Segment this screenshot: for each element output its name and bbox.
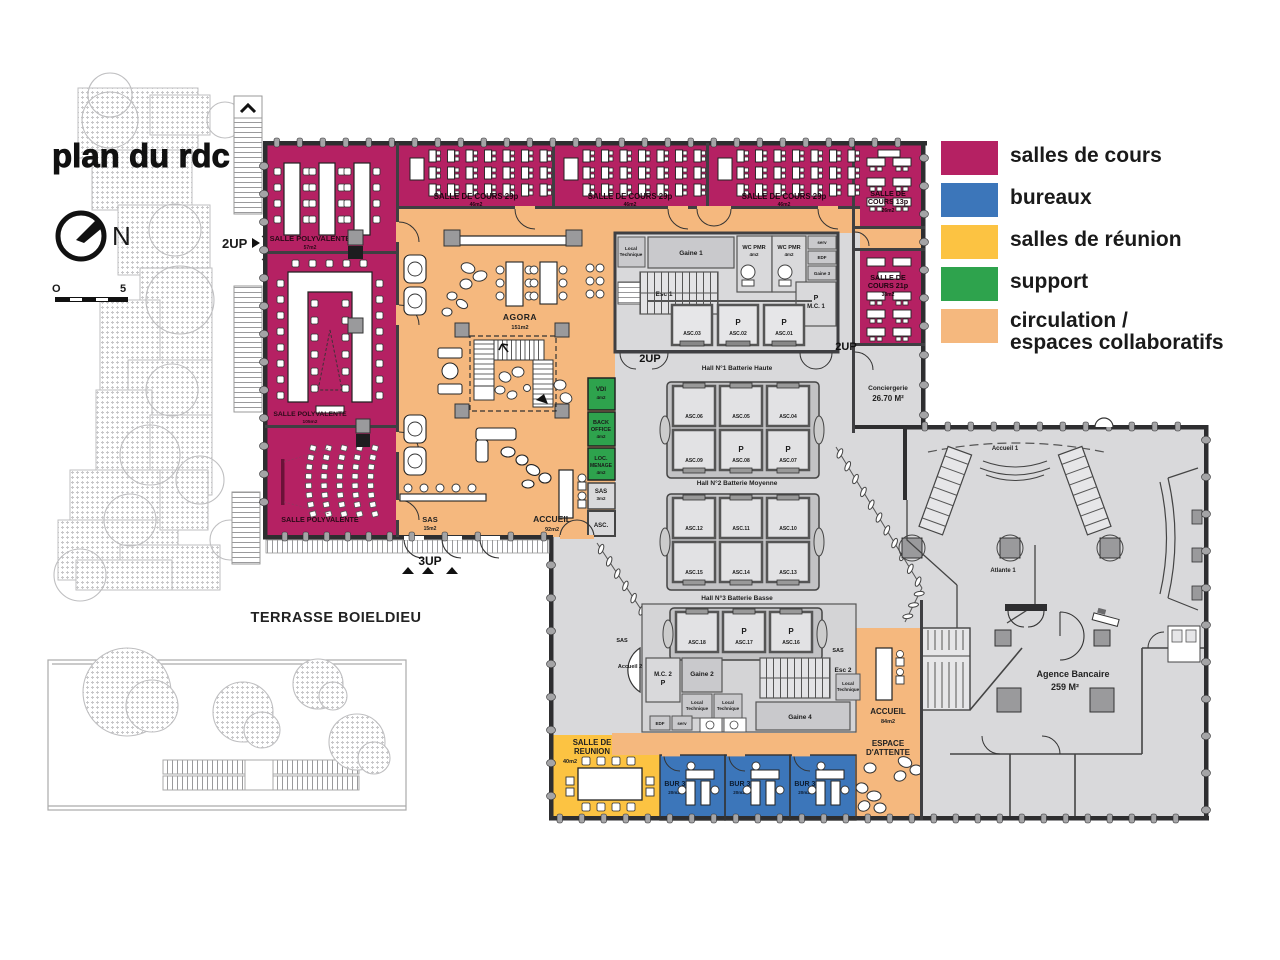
svg-text:ACCUEIL: ACCUEIL — [533, 514, 571, 524]
svg-text:SAS: SAS — [595, 489, 607, 495]
svg-text:P: P — [661, 680, 666, 687]
svg-text:ASC.01: ASC.01 — [775, 331, 793, 337]
svg-text:ASC.04: ASC.04 — [779, 414, 797, 420]
svg-text:Local: Local — [722, 700, 734, 705]
svg-text:SALLE DE: SALLE DE — [573, 738, 612, 747]
svg-text:P: P — [735, 318, 741, 327]
svg-text:2UP: 2UP — [639, 353, 660, 365]
svg-text:salles de cours: salles de cours — [1010, 144, 1162, 167]
svg-text:4m2: 4m2 — [596, 470, 606, 475]
svg-text:WC PMR: WC PMR — [742, 245, 765, 251]
svg-text:Accueil 1: Accueil 1 — [992, 446, 1019, 452]
svg-text:Technique: Technique — [686, 706, 709, 711]
svg-text:SALLE POLYVALENTE: SALLE POLYVALENTE — [281, 515, 359, 524]
svg-text:Gaine 1: Gaine 1 — [679, 250, 703, 257]
svg-text:ESPACE: ESPACE — [872, 739, 905, 748]
svg-text:OFFICE: OFFICE — [591, 427, 611, 433]
svg-text:92m2: 92m2 — [545, 527, 559, 533]
svg-text:REUNION: REUNION — [574, 747, 610, 756]
svg-text:Local: Local — [842, 681, 854, 686]
svg-text:serv: serv — [677, 721, 687, 726]
svg-text:84m2: 84m2 — [881, 719, 895, 725]
svg-text:support: support — [1010, 270, 1088, 293]
svg-text:Accueil 2: Accueil 2 — [618, 664, 642, 670]
svg-text:ASC.11: ASC.11 — [732, 526, 749, 532]
svg-text:4m2: 4m2 — [596, 434, 606, 439]
svg-text:26.70 M²: 26.70 M² — [872, 394, 904, 403]
svg-text:MENAGE: MENAGE — [590, 463, 613, 469]
svg-text:SALLE DE COURS 29p: SALLE DE COURS 29p — [742, 192, 827, 201]
svg-text:ASC.12: ASC.12 — [685, 526, 703, 532]
svg-text:D'ATTENTE: D'ATTENTE — [866, 748, 911, 757]
svg-text:LOC.: LOC. — [594, 456, 608, 462]
svg-text:serv: serv — [817, 240, 827, 245]
svg-text:ASC.09: ASC.09 — [685, 458, 703, 464]
svg-text:SAS: SAS — [422, 515, 437, 524]
svg-text:ASC.14: ASC.14 — [732, 570, 750, 576]
svg-text:BACK: BACK — [593, 420, 609, 426]
svg-text:Atlante 1: Atlante 1 — [990, 568, 1016, 574]
svg-text:EDF: EDF — [818, 255, 827, 260]
svg-text:bureaux: bureaux — [1010, 186, 1092, 209]
svg-text:ASC.16: ASC.16 — [782, 640, 800, 646]
svg-text:M.C. 1: M.C. 1 — [807, 304, 825, 310]
svg-text:4m2: 4m2 — [749, 252, 759, 257]
svg-text:ASC.18: ASC.18 — [688, 640, 706, 646]
svg-text:ASC.08: ASC.08 — [732, 458, 750, 464]
svg-text:3UP: 3UP — [418, 554, 441, 568]
svg-text:AGORA: AGORA — [503, 312, 537, 322]
svg-text:ASC.07: ASC.07 — [779, 458, 797, 464]
svg-text:Esc 1: Esc 1 — [656, 291, 673, 298]
svg-text:46m2: 46m2 — [470, 202, 483, 208]
svg-text:15m2: 15m2 — [424, 526, 437, 532]
svg-text:4m2: 4m2 — [784, 252, 794, 257]
svg-text:ACCUEIL: ACCUEIL — [870, 707, 906, 716]
svg-text:P: P — [814, 295, 819, 302]
svg-text:Technique: Technique — [620, 252, 643, 257]
svg-text:COURS 21p: COURS 21p — [868, 281, 909, 290]
svg-text:O: O — [52, 283, 61, 295]
svg-text:circulation /: circulation / — [1010, 309, 1128, 332]
svg-text:46m2: 46m2 — [778, 202, 791, 208]
svg-text:P: P — [788, 627, 794, 636]
svg-text:ASC.05: ASC.05 — [732, 414, 750, 420]
svg-text:Technique: Technique — [837, 687, 860, 692]
svg-text:ASC.15: ASC.15 — [685, 570, 703, 576]
svg-text:SALLE POLYVALENTE: SALLE POLYVALENTE — [273, 411, 347, 418]
svg-text:ASC.13: ASC.13 — [779, 570, 797, 576]
svg-text:ASC.06: ASC.06 — [685, 414, 703, 420]
svg-text:Technique: Technique — [717, 706, 740, 711]
svg-text:SALLE DE COURS 29p: SALLE DE COURS 29p — [588, 192, 673, 201]
svg-text:33m2: 33m2 — [882, 292, 895, 298]
svg-text:151m2: 151m2 — [511, 325, 528, 331]
svg-text:2UP: 2UP — [222, 236, 248, 251]
svg-text:espaces collaboratifs: espaces collaboratifs — [1010, 331, 1224, 354]
svg-text:ASC.10: ASC.10 — [779, 526, 797, 532]
svg-text:P: P — [738, 445, 744, 454]
svg-text:COURS 13p: COURS 13p — [868, 197, 909, 206]
svg-text:SALLE POLYVALENTE: SALLE POLYVALENTE — [270, 234, 351, 243]
svg-text:Conciergerie: Conciergerie — [868, 385, 908, 392]
svg-text:M.C. 2: M.C. 2 — [654, 672, 672, 678]
svg-text:4m2: 4m2 — [596, 395, 606, 400]
svg-text:Local: Local — [625, 246, 637, 251]
svg-text:P: P — [741, 627, 747, 636]
svg-text:ASC.03: ASC.03 — [683, 331, 701, 337]
svg-text:5: 5 — [120, 283, 126, 295]
svg-text:P: P — [781, 318, 787, 327]
svg-text:Gaine 2: Gaine 2 — [690, 671, 714, 678]
svg-text:40m2: 40m2 — [563, 759, 577, 765]
svg-text:SAS: SAS — [616, 638, 628, 644]
svg-text:Esc 2: Esc 2 — [835, 667, 852, 674]
svg-text:Agence Bancaire: Agence Bancaire — [1036, 669, 1109, 679]
svg-text:105m2: 105m2 — [303, 419, 318, 425]
svg-text:N: N — [112, 221, 131, 251]
svg-text:SAS: SAS — [832, 648, 844, 654]
svg-text:VDI: VDI — [596, 387, 606, 393]
svg-text:TERRASSE BOIELDIEU: TERRASSE BOIELDIEU — [251, 610, 422, 626]
svg-text:SALLE DE COURS 29p: SALLE DE COURS 29p — [434, 192, 519, 201]
svg-text:Gaine 4: Gaine 4 — [788, 714, 812, 721]
svg-text:ASC.02: ASC.02 — [729, 331, 747, 337]
svg-text:2UP: 2UP — [835, 341, 856, 353]
svg-text:26m2: 26m2 — [882, 208, 895, 214]
svg-text:57m2: 57m2 — [304, 245, 317, 251]
svg-text:P: P — [785, 445, 791, 454]
svg-text:Gaine 3: Gaine 3 — [814, 271, 831, 276]
svg-text:WC PMR: WC PMR — [777, 245, 800, 251]
svg-text:EDF: EDF — [656, 721, 665, 726]
svg-text:259 M²: 259 M² — [1051, 682, 1079, 692]
svg-text:Local: Local — [691, 700, 703, 705]
svg-text:plan du rdc: plan du rdc — [52, 137, 230, 174]
svg-text:46m2: 46m2 — [624, 202, 637, 208]
svg-text:ASC.17: ASC.17 — [735, 640, 753, 646]
svg-text:3m2: 3m2 — [596, 496, 606, 501]
svg-text:Hall N°2 Batterie Moyenne: Hall N°2 Batterie Moyenne — [697, 479, 778, 487]
svg-text:Hall N°3 Batterie Basse: Hall N°3 Batterie Basse — [701, 594, 773, 602]
svg-text:salles de réunion: salles de réunion — [1010, 228, 1182, 251]
svg-text:Hall N°1 Batterie Haute: Hall N°1 Batterie Haute — [702, 364, 773, 372]
svg-text:ASC.: ASC. — [594, 523, 609, 529]
